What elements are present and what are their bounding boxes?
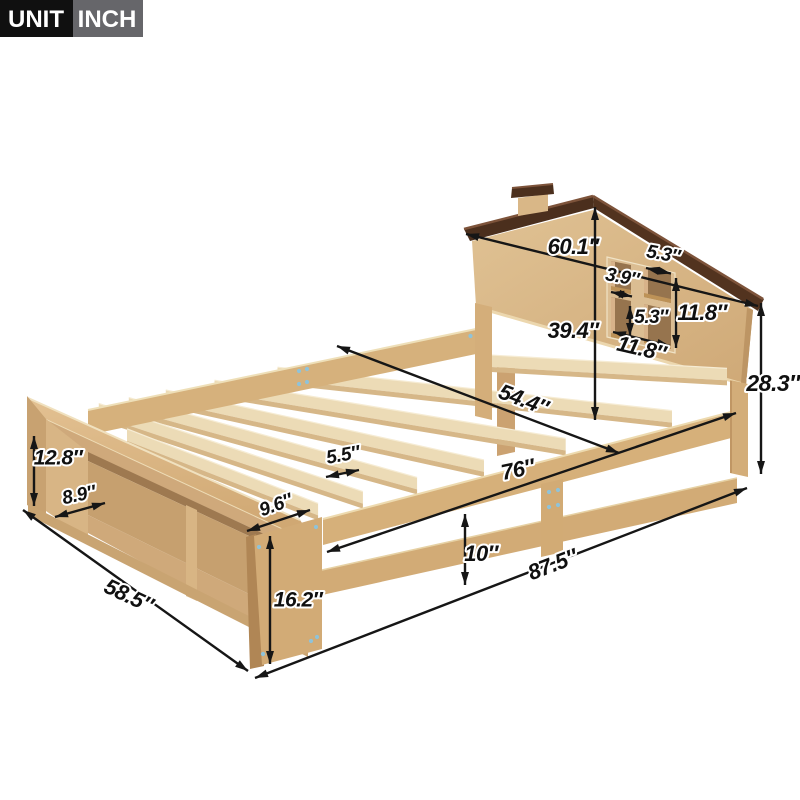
svg-text:INCH: INCH: [78, 6, 137, 33]
svg-text:10″: 10″: [464, 541, 499, 566]
svg-text:16.2″: 16.2″: [274, 589, 324, 612]
svg-text:UNIT: UNIT: [8, 6, 64, 33]
svg-text:5.3″: 5.3″: [634, 307, 669, 328]
svg-text:12.8″: 12.8″: [34, 447, 84, 470]
svg-text:39.4″: 39.4″: [548, 318, 601, 343]
svg-text:60.1″: 60.1″: [548, 234, 601, 259]
svg-text:28.3″: 28.3″: [745, 370, 800, 396]
svg-text:11.8″: 11.8″: [677, 300, 728, 325]
